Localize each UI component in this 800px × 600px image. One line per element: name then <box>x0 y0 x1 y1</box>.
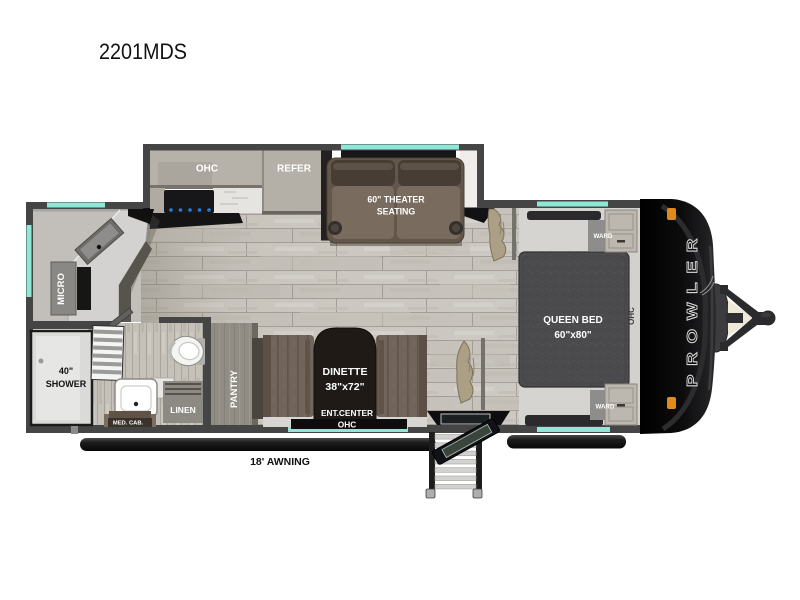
svg-text:38"x72": 38"x72" <box>325 381 364 393</box>
svg-text:2201MDS: 2201MDS <box>99 39 187 64</box>
svg-text:MED. CAB.: MED. CAB. <box>113 421 144 427</box>
svg-text:ENT.CENTER: ENT.CENTER <box>321 408 373 418</box>
svg-text:60"x80": 60"x80" <box>554 330 592 341</box>
svg-text:QUEEN BED: QUEEN BED <box>543 315 602 326</box>
svg-text:PANTRY: PANTRY <box>229 369 240 408</box>
svg-text:40": 40" <box>59 366 73 376</box>
svg-text:OHC: OHC <box>196 164 218 175</box>
svg-text:DINETTE: DINETTE <box>323 366 368 378</box>
svg-text:MICRO: MICRO <box>56 273 67 305</box>
svg-text:60" THEATER: 60" THEATER <box>367 195 425 205</box>
svg-text:REFER: REFER <box>277 164 312 175</box>
svg-text:SHOWER: SHOWER <box>46 379 87 389</box>
svg-text:18' AWNING: 18' AWNING <box>250 456 310 468</box>
svg-text:OHC: OHC <box>338 420 356 430</box>
svg-text:SEATING: SEATING <box>377 207 416 217</box>
svg-text:WARD: WARD <box>596 404 615 411</box>
svg-text:PROWLER: PROWLER <box>684 230 701 387</box>
svg-text:WARD: WARD <box>594 233 613 240</box>
svg-text:LINEN: LINEN <box>170 405 196 415</box>
